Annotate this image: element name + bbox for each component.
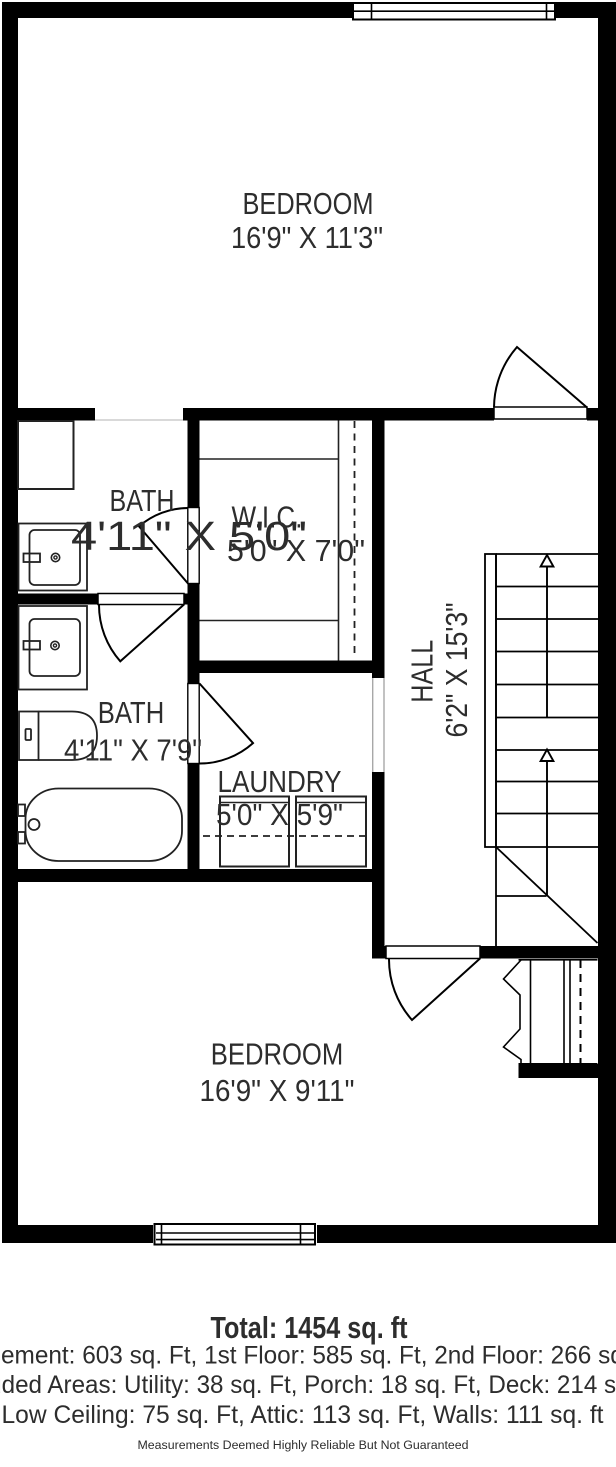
svg-text:4'11" X 7'9": 4'11" X 7'9" <box>64 733 202 768</box>
svg-text:HALL: HALL <box>405 640 440 703</box>
svg-text:BATH: BATH <box>98 695 165 730</box>
svg-text:LAUNDRY: LAUNDRY <box>218 764 342 799</box>
svg-text:16'9" X 9'11": 16'9" X 9'11" <box>200 1073 355 1108</box>
svg-text:5'0" X 7'0": 5'0" X 7'0" <box>227 533 365 568</box>
svg-text:BEDROOM: BEDROOM <box>243 186 374 221</box>
svg-text:Excluded Areas: Utility: 38 sq: Excluded Areas: Utility: 38 sq. Ft, Porc… <box>0 1371 616 1399</box>
svg-text:6'2" X 15'3": 6'2" X 15'3" <box>439 603 474 738</box>
svg-text:Low Ceiling: 75 sq. Ft, Attic:: Low Ceiling: 75 sq. Ft, Attic: 113 sq. F… <box>2 1401 604 1429</box>
svg-text:Total: 1454 sq. ft: Total: 1454 sq. ft <box>211 1310 408 1345</box>
svg-text:Measurements Deemed Highly Rel: Measurements Deemed Highly Reliable But … <box>138 1438 469 1452</box>
svg-text:BEDROOM: BEDROOM <box>211 1037 344 1072</box>
svg-text:16'9" X 11'3": 16'9" X 11'3" <box>231 220 383 255</box>
svg-text:5'0" X 5'9": 5'0" X 5'9" <box>216 797 343 832</box>
svg-text:W.I.C.: W.I.C. <box>232 500 303 535</box>
svg-text:Basement: 603 sq. Ft, 1st Floo: Basement: 603 sq. Ft, 1st Floor: 585 sq.… <box>0 1342 616 1370</box>
